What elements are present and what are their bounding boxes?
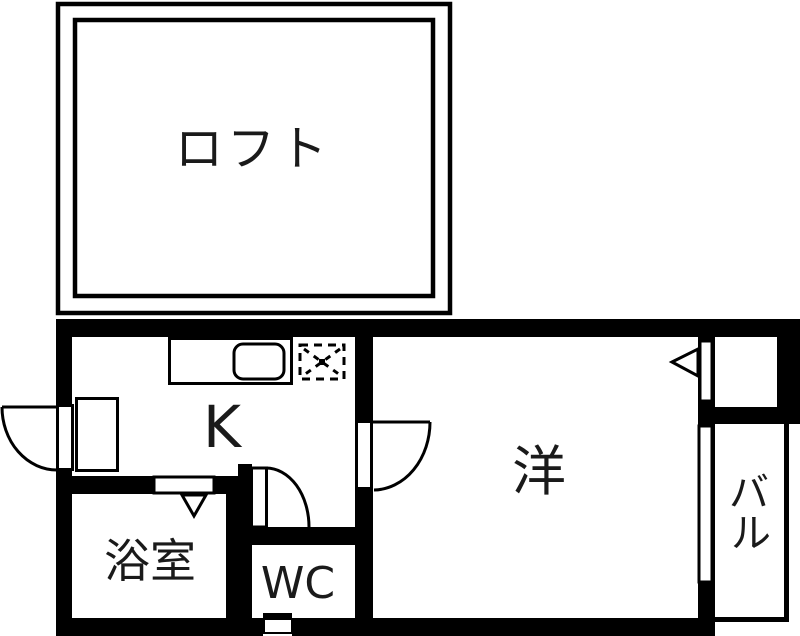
- wall-left-lower: [56, 469, 72, 636]
- kitchen-sink-icon: [234, 344, 284, 379]
- balcony-edge-bottom: [715, 617, 789, 622]
- wall-kitchen-western-upper: [355, 337, 373, 421]
- loft-label: ロフト: [175, 121, 331, 177]
- western-room-label: 洋: [512, 440, 566, 503]
- wall-toilet-top: [250, 527, 373, 545]
- range-space-center-dot: [319, 359, 325, 365]
- entrance-door-leaf-icon: [58, 406, 73, 470]
- balcony-label: バ ル: [729, 470, 771, 557]
- kitchen-western-door-leaf-icon: [357, 422, 372, 489]
- balcony-label-char-2: ル: [731, 511, 771, 557]
- bathroom-label: 浴室: [104, 534, 196, 588]
- range-space-icon: [300, 345, 344, 379]
- entrance-step-icon: [77, 399, 118, 471]
- floorplan-drawing: ロフト K 浴室 WC 洋 バ ル: [0, 0, 800, 636]
- bathroom-door-icon: [154, 477, 214, 493]
- wall-left-upper: [56, 319, 72, 405]
- toilet-door-leaf-icon: [252, 468, 267, 527]
- floorplan-canvas: ロフト K 浴室 WC 洋 バ ル: [0, 0, 800, 636]
- window-balcony-icon: [699, 426, 712, 582]
- toilet-label: WC: [261, 558, 335, 609]
- bottom-vent-opening: [264, 619, 292, 633]
- balcony-label-char-1: バ: [729, 470, 769, 516]
- wall-bathroom-toilet: [226, 494, 252, 618]
- wall-closet-bottom: [698, 407, 800, 424]
- wall-kitchen-western-lower: [355, 489, 373, 618]
- wall-doorjamb-stub: [238, 464, 252, 478]
- wall-bottom-left: [56, 618, 263, 636]
- closet-area: [715, 337, 777, 407]
- wall-bottom-right: [292, 618, 715, 636]
- kitchen-label: K: [203, 393, 243, 461]
- wall-top: [56, 319, 800, 337]
- window-closet-icon: [700, 341, 712, 401]
- balcony-edge-right: [784, 424, 789, 622]
